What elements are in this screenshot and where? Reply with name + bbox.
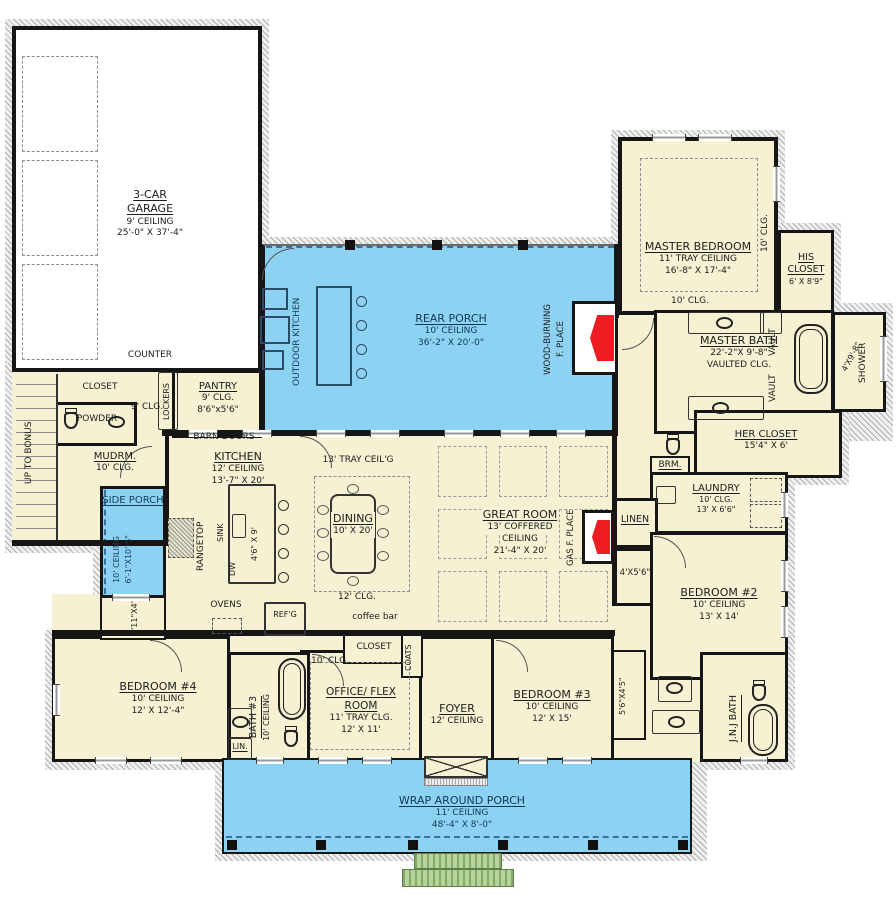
porch-post: [227, 840, 237, 850]
dining-chair: [347, 484, 359, 494]
porch-post: [518, 240, 528, 250]
garage-bay-2: [22, 160, 98, 256]
room-pantry: [172, 370, 262, 438]
window: [781, 606, 788, 638]
ovens-appliance: [212, 618, 242, 634]
jnj-sink-2: [668, 716, 685, 728]
porch-post: [316, 840, 326, 850]
wrap-porch-edge: [226, 836, 688, 838]
window: [53, 684, 60, 716]
gas-fireplace-box: [582, 510, 614, 564]
window: [556, 430, 586, 437]
bath3-sink: [232, 716, 249, 728]
wood-fireplace-firebox: [590, 315, 614, 361]
porch-post: [678, 840, 688, 850]
room-her-closet: [694, 410, 842, 478]
island-stool-4: [278, 572, 289, 583]
porch-post: [588, 840, 598, 850]
window: [518, 757, 548, 764]
lin-cabinet: [228, 738, 252, 760]
washer: [750, 478, 782, 502]
dining-chair: [377, 551, 389, 561]
room-bedroom4: [52, 636, 230, 762]
island-sink: [232, 514, 246, 538]
wall-bottomrow-top: [52, 630, 615, 636]
dining-chair: [377, 505, 389, 515]
outdoor-stool-4: [356, 368, 367, 379]
master-sink-bottom: [712, 402, 729, 414]
island-stool-2: [278, 524, 289, 535]
dining-chair: [317, 551, 329, 561]
window: [316, 430, 346, 437]
jnj-toilet: [752, 684, 766, 701]
porch-post: [432, 240, 442, 250]
garage-bay-3: [22, 264, 98, 360]
wood-fireplace-box: [572, 301, 618, 375]
porch-post: [345, 240, 355, 250]
window: [773, 166, 780, 202]
room-shower: [832, 312, 886, 412]
wall-leftwing-bottom: [12, 540, 168, 546]
room-office-closet: [343, 634, 405, 664]
laundry-sink: [656, 486, 676, 504]
window: [698, 134, 732, 141]
window: [95, 757, 127, 764]
window: [781, 492, 788, 518]
front-double-door: [424, 756, 488, 778]
dryer: [750, 504, 782, 528]
room-his-closet: [778, 230, 834, 314]
window: [652, 134, 686, 141]
window: [256, 757, 284, 764]
rangetop-appliance: [168, 518, 194, 558]
lockers-cabinet: [158, 372, 178, 430]
powder-toilet: [64, 412, 78, 429]
outdoor-kitchen-grill-2: [260, 316, 290, 344]
powder-sink: [108, 416, 125, 428]
dining-chair: [347, 576, 359, 586]
master-tub: [794, 324, 828, 394]
dining-chair: [317, 505, 329, 515]
window: [562, 757, 592, 764]
window: [444, 430, 474, 437]
outdoor-island: [316, 286, 352, 386]
master-cabinet: [760, 312, 782, 334]
stairs-up-to-bonus: [16, 374, 58, 540]
island-stool-1: [278, 500, 289, 511]
window: [781, 560, 788, 592]
garage-bay-1: [22, 56, 98, 152]
outdoor-stool-3: [356, 344, 367, 355]
outdoor-stool-1: [356, 296, 367, 307]
window: [150, 757, 182, 764]
refg-appliance: [264, 602, 306, 636]
gas-fireplace-firebox: [592, 520, 610, 554]
porch-post: [498, 840, 508, 850]
front-door-sill: [424, 778, 488, 786]
master-sink-top: [716, 317, 733, 329]
dining-table: [330, 494, 376, 574]
window: [740, 757, 768, 764]
vestibule-toilet: [666, 438, 680, 455]
bath3-tub: [278, 658, 306, 720]
window: [318, 757, 348, 764]
window: [362, 757, 392, 764]
window: [188, 430, 218, 437]
floor-plan: 3-CAR GARAGE 9' CEILING 25'-0" X 37'-4" …: [0, 0, 896, 900]
island-stool-3: [278, 548, 289, 559]
master-tray: [640, 158, 758, 292]
outdoor-kitchen-grill-3: [262, 350, 284, 370]
window: [112, 594, 150, 601]
porch-steps-upper: [414, 853, 502, 869]
bath3-toilet: [284, 730, 298, 747]
jnj-sink-1: [666, 682, 683, 694]
window: [880, 336, 887, 382]
window: [500, 430, 530, 437]
outdoor-stool-2: [356, 320, 367, 331]
window: [370, 430, 400, 437]
window: [242, 430, 272, 437]
dining-chair: [317, 528, 329, 538]
porch-steps-lower: [402, 869, 514, 887]
outdoor-kitchen-grill-1: [262, 288, 288, 310]
jnj-tub: [748, 704, 778, 756]
room-bed3-closet: [610, 650, 646, 740]
porch-post: [408, 840, 418, 850]
dining-chair: [377, 528, 389, 538]
